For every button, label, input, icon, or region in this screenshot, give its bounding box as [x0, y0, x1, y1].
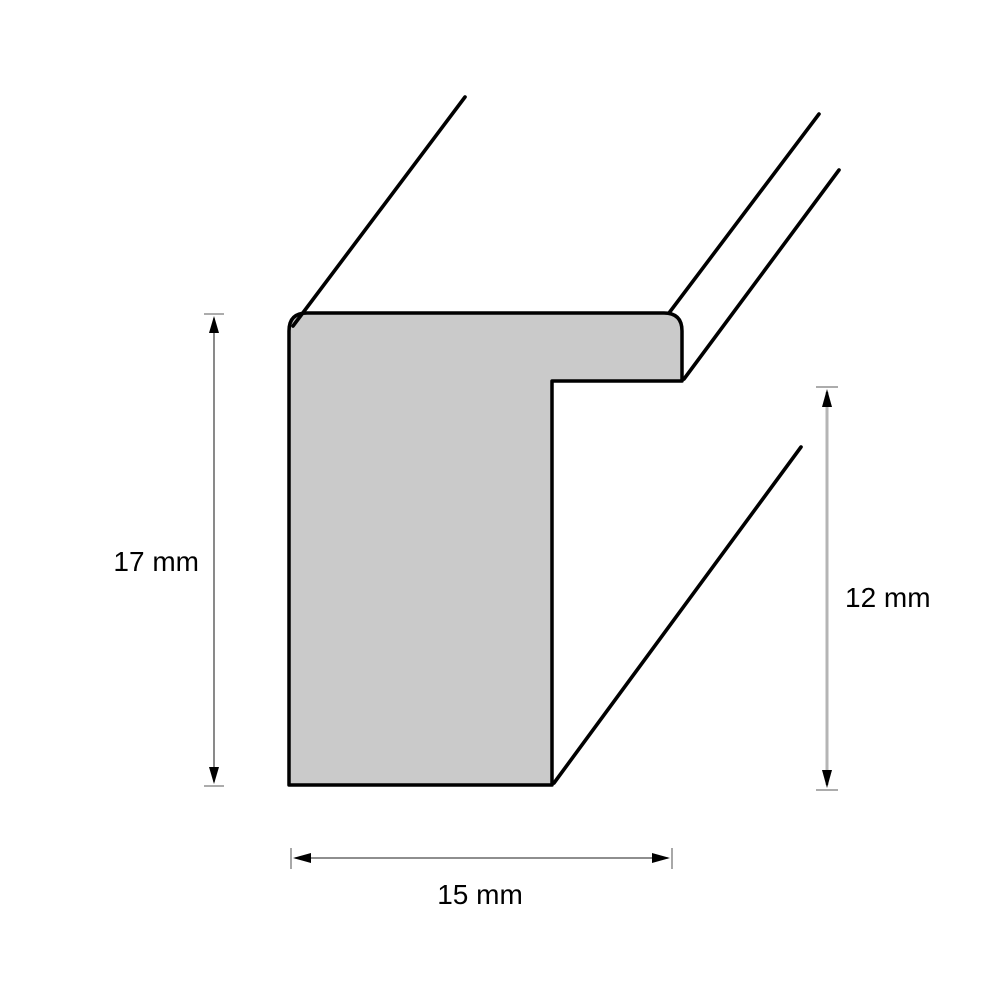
diagram-canvas: 17 mm 12 mm 15 mm: [0, 0, 1000, 1000]
perspective-line-bottom-right: [554, 447, 801, 783]
perspective-line-top-left: [293, 97, 465, 326]
dimension-17mm-arrow-up: [209, 316, 219, 333]
profile-diagram: 17 mm 12 mm 15 mm: [0, 0, 1000, 1000]
dimension-15mm-arrow-right: [652, 853, 670, 863]
dimension-17mm: 17 mm: [113, 314, 224, 786]
dimension-15mm-arrow-left: [293, 853, 311, 863]
profile-shape: [289, 313, 682, 785]
perspective-line-step-corner: [684, 170, 839, 379]
perspective-line-top-right: [669, 114, 819, 313]
dimension-17mm-label: 17 mm: [113, 546, 199, 577]
dimension-12mm: 12 mm: [816, 387, 931, 790]
dimension-15mm-label: 15 mm: [437, 879, 523, 910]
dimension-12mm-label: 12 mm: [845, 582, 931, 613]
dimension-15mm: 15 mm: [291, 848, 672, 910]
dimension-12mm-arrow-up: [822, 389, 832, 407]
dimension-12mm-arrow-down: [822, 770, 832, 788]
dimension-17mm-arrow-down: [209, 767, 219, 784]
